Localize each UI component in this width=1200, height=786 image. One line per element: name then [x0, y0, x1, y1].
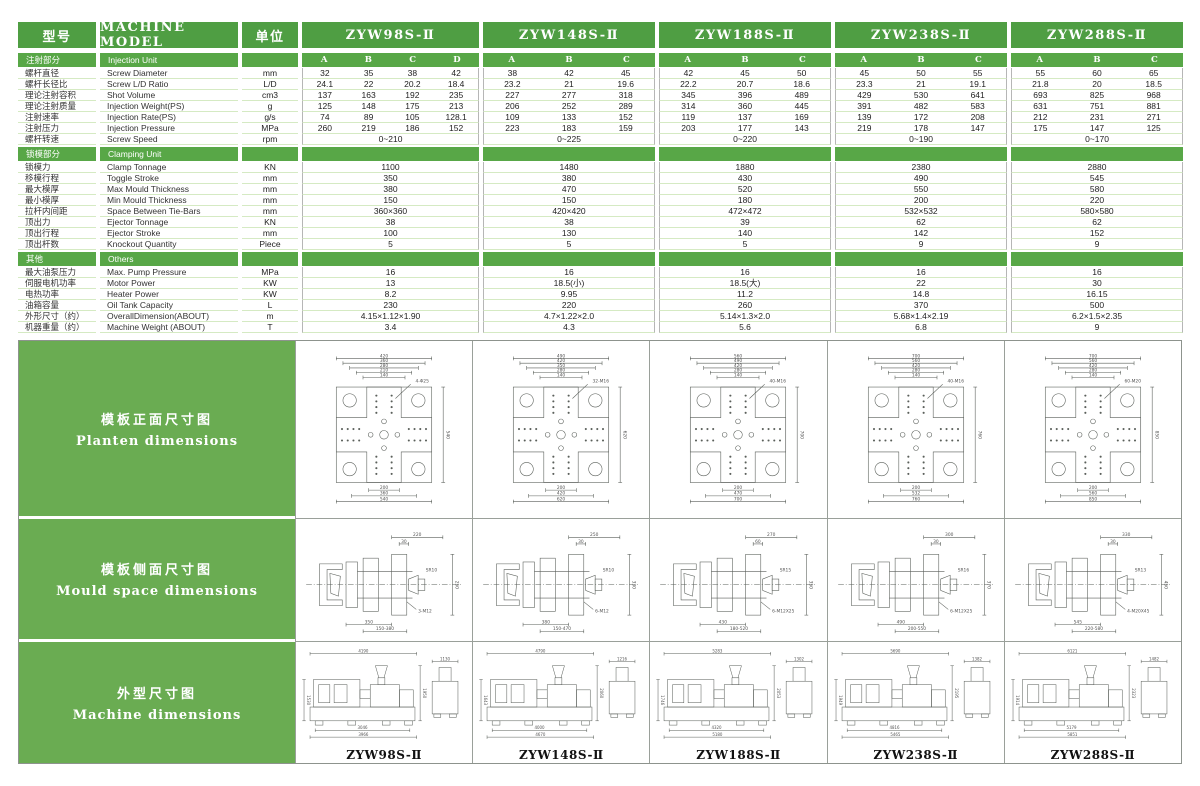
- value-cell: 32: [303, 68, 347, 78]
- drawing-cell-machine-dimensions: 419015301950304639661130ZYW98S-Ⅱ: [295, 642, 472, 763]
- drawing-cell-platen-dimensions: 49042035028014032-M16620200420620: [472, 341, 649, 519]
- bolt-spec-label: 40-M16: [947, 378, 964, 384]
- drawing-cell-platen-dimensions: 56049042028014040-M16700200470700: [649, 341, 826, 519]
- value-cell: 1880: [659, 162, 831, 173]
- dim-label: 1949: [838, 695, 843, 706]
- row-unit: L/D: [242, 79, 298, 90]
- row-label-cn: 螺杆转速: [18, 134, 96, 145]
- value-cell: 23.2: [484, 79, 541, 89]
- dim-label: 850: [1089, 496, 1098, 502]
- table-row: 锁模力Clamp TonnageKN11001480188023802880: [18, 162, 1183, 173]
- subcol-header-group: [483, 252, 655, 266]
- subcol-letter: B: [716, 55, 773, 65]
- value-cell: 223: [484, 123, 541, 133]
- row-label-en: Screw L/D Ratio: [100, 79, 238, 90]
- table-row: 注射速率Injection Rate(PS)g/s7489105128.1109…: [18, 112, 1183, 123]
- value-cell: 38: [483, 217, 655, 228]
- dim-label: 200: [1089, 484, 1098, 490]
- subcol-header-group: ABC: [1011, 53, 1183, 67]
- dim-label: 350: [808, 581, 814, 590]
- dim-label: 5179: [1066, 725, 1077, 730]
- dim-label: 700: [799, 430, 805, 439]
- value-cell: 55: [1012, 68, 1069, 78]
- dim-label: 30: [1110, 539, 1116, 545]
- value-cell: 3.4: [302, 322, 479, 333]
- dim-label: 560: [1089, 490, 1098, 496]
- value-cell: 380: [302, 184, 479, 195]
- row-unit: KN: [242, 217, 298, 228]
- platen-drawing: 4203602802101404-Φ25540200360540: [300, 352, 468, 508]
- platen-drawing: 56049042028014040-M16700200470700: [654, 352, 822, 508]
- row-label-en: Min Mould Thickness: [100, 195, 238, 206]
- row-label-en: Ejector Tonnage: [100, 217, 238, 228]
- value-cell: 62: [1011, 217, 1183, 228]
- value-cell-group: 391482583: [835, 101, 1007, 112]
- dim-label: 140: [912, 372, 921, 378]
- row-label-cn: 顶出力: [18, 217, 96, 228]
- dim-label: 470: [734, 490, 743, 496]
- subcol-header-group: [659, 147, 831, 161]
- dim-label: 370: [985, 581, 991, 590]
- nozzle-radius-label: SR10: [426, 567, 438, 573]
- dim-label: 532: [912, 490, 921, 496]
- value-cell: 147: [949, 123, 1006, 133]
- value-cell: 206: [484, 101, 541, 111]
- bolt-spec-label: 32-M16: [593, 378, 610, 384]
- table-row: 机器重量（约）Machine Weight (ABOUT)T3.44.35.66…: [18, 322, 1183, 333]
- value-cell: 370: [835, 300, 1007, 311]
- subcol-header-group: [302, 147, 479, 161]
- row-label-en: Machine Weight (ABOUT): [100, 322, 238, 333]
- value-cell-group: 23.22119.6: [483, 79, 655, 90]
- value-cell: 65: [1125, 68, 1182, 78]
- value-cell: 177: [717, 123, 774, 133]
- value-cell: 203: [660, 123, 717, 133]
- table-row: 电热功率Heater PowerKW8.29.9511.214.816.15: [18, 289, 1183, 300]
- subcol-header-group: [302, 252, 479, 266]
- unit-header: 单位: [242, 22, 298, 48]
- dim-label: 2323: [1131, 688, 1136, 699]
- value-cell: 175: [1012, 123, 1069, 133]
- value-cell: 55: [949, 68, 1006, 78]
- value-cell: 20: [1069, 79, 1126, 89]
- value-cell: 38: [391, 68, 435, 78]
- value-cell: 580×580: [1011, 206, 1183, 217]
- row-unit: mm: [242, 228, 298, 239]
- value-cell: 119: [660, 112, 717, 122]
- bolt-spec-label: 3-M12: [418, 608, 432, 614]
- row-label-cn: 注射速率: [18, 112, 96, 123]
- dim-label: 350: [365, 619, 374, 625]
- dim-label: 1130: [440, 656, 451, 661]
- dim-label: 1530: [306, 695, 311, 706]
- value-cell: 183: [541, 123, 598, 133]
- dim-label: 850: [1153, 430, 1159, 439]
- dim-label: 5180: [713, 732, 724, 737]
- value-cell-group: 455055: [835, 68, 1007, 79]
- value-cell: 60: [1069, 68, 1126, 78]
- table-row: 顶出杆数Knockout QuantityPiece55599: [18, 239, 1183, 250]
- value-cell: 380: [483, 173, 655, 184]
- dim-label: 2060: [599, 688, 604, 699]
- mould-space-drawing: 27060350430180-5206-M12X25SR15: [654, 524, 822, 636]
- dim-label: 330: [631, 581, 637, 590]
- value-cell: 18.5(大): [659, 278, 831, 289]
- dim-label: 200: [912, 484, 921, 490]
- value-cell: 5.6: [659, 322, 831, 333]
- value-cell-group: 206252289: [483, 101, 655, 112]
- bolt-spec-label: 4-Φ25: [416, 378, 430, 384]
- value-cell: 580: [1011, 184, 1183, 195]
- value-cell: 500: [1011, 300, 1183, 311]
- model-name: ZYW98S-Ⅱ: [302, 22, 479, 48]
- row-unit: mm: [242, 195, 298, 206]
- value-cell: 550: [835, 184, 1007, 195]
- drawing-cell-mould-space-dimensions: 30030370490200-5506-M12X25SR16: [827, 519, 1004, 642]
- value-cell: 489: [773, 90, 830, 100]
- value-cell: 45: [836, 68, 893, 78]
- machine-drawing: 479016432060400046701216: [475, 643, 647, 747]
- bolt-spec-label: 6-M12X25: [773, 608, 795, 614]
- row-label-cn: 拉杆内间距: [18, 206, 96, 217]
- row-label-cn: 顶出行程: [18, 228, 96, 239]
- value-cell: 6.8: [835, 322, 1007, 333]
- row-label-en: Shot Volume: [100, 90, 238, 101]
- row-label-cn: 最大油泵压力: [18, 267, 96, 278]
- dim-label: 540: [380, 496, 389, 502]
- drawing-cell-mould-space-dimensions: 27060350430180-5206-M12X25SR15: [649, 519, 826, 642]
- value-cell: 39: [659, 217, 831, 228]
- value-cell: 219: [347, 123, 391, 133]
- value-cell: 175: [391, 101, 435, 111]
- value-cell: 180: [659, 195, 831, 206]
- bolt-spec-label: 40-M16: [770, 378, 787, 384]
- row-unit: T: [242, 322, 298, 333]
- dim-label: 180-520: [730, 626, 748, 632]
- table-row: 螺杆长径比Screw L/D RatioL/D24.12220.218.423.…: [18, 79, 1183, 90]
- dim-label: 490: [896, 619, 905, 625]
- value-cell: 350: [302, 173, 479, 184]
- machine-drawing: 569019492195481654651382: [830, 643, 1002, 747]
- value-cell: 148: [347, 101, 391, 111]
- table-row: 最大模厚Max Mould Thicknessmm380470520550580: [18, 184, 1183, 195]
- row-unit: mm: [242, 184, 298, 195]
- row-unit: g/s: [242, 112, 298, 123]
- value-cell: 152: [1011, 228, 1183, 239]
- value-cell: 1100: [302, 162, 479, 173]
- dim-label: 760: [912, 496, 921, 502]
- subcol-letter: C: [391, 55, 435, 65]
- value-cell: 9.95: [483, 289, 655, 300]
- dim-label: 200: [557, 484, 566, 490]
- dim-label: 380: [542, 619, 551, 625]
- dim-label: 1643: [483, 695, 488, 706]
- value-cell: 133: [541, 112, 598, 122]
- machine-drawing: 419015301950304639661130: [298, 643, 470, 747]
- dim-label: 4670: [536, 732, 547, 737]
- value-cell: 9: [1011, 239, 1183, 250]
- value-cell-group: 227277318: [483, 90, 655, 101]
- value-cell: 42: [660, 68, 717, 78]
- value-cell: 21.8: [1012, 79, 1069, 89]
- dim-label: 140: [380, 372, 389, 378]
- subcol-header-group: [483, 147, 655, 161]
- value-cell-group: 22.220.718.6: [659, 79, 831, 90]
- section-label-cn: 锁模部分: [18, 147, 96, 161]
- value-cell: 30: [1011, 278, 1183, 289]
- drawing-model-label: ZYW188S-Ⅱ: [696, 747, 781, 762]
- sidebar-label-cn: 外型尺寸图: [117, 683, 197, 702]
- value-cell: 50: [893, 68, 950, 78]
- value-cell-group: 119137169: [659, 112, 831, 123]
- value-cell: 2380: [835, 162, 1007, 173]
- value-cell: 5: [302, 239, 479, 250]
- row-label-en: OverallDimension(ABOUT): [100, 311, 238, 322]
- subcol-letter: B: [540, 55, 597, 65]
- value-cell: 38: [484, 68, 541, 78]
- value-cell-group: 23.32119.1: [835, 79, 1007, 90]
- value-cell: 230: [302, 300, 479, 311]
- dim-label: 450: [1163, 581, 1169, 590]
- value-cell-group: 429530641: [835, 90, 1007, 101]
- value-cell: 11.2: [659, 289, 831, 300]
- dim-label: 1950: [422, 688, 427, 699]
- table-row: 注射压力Injection PressureMPa260219186152223…: [18, 123, 1183, 134]
- drawing-model-label: ZYW238S-Ⅱ: [873, 747, 958, 762]
- sidebar-section-platen-dimensions: 模板正面尺寸图Planten dimensions: [19, 341, 295, 519]
- value-cell: 18.5: [1125, 79, 1182, 89]
- value-cell: 18.5(小): [483, 278, 655, 289]
- dim-label: 330: [1122, 532, 1131, 538]
- subcol-letter: A: [483, 55, 540, 65]
- table-row: 螺杆直径Screw Diametermm32353842384245424550…: [18, 68, 1183, 79]
- mould-space-drawing: 33030450545220-5804-M20X45SR13: [1009, 524, 1177, 636]
- value-cell: 186: [391, 123, 435, 133]
- dim-label: 5465: [890, 732, 901, 737]
- value-cell: 18.6: [773, 79, 830, 89]
- value-cell: 137: [717, 112, 774, 122]
- table-row: 伺服电机功率Motor PowerKW1318.5(小)18.5(大)2230: [18, 278, 1183, 289]
- value-cell: 19.1: [949, 79, 1006, 89]
- dim-label: 30: [401, 539, 407, 545]
- drawing-cell-machine-dimensions: 569019492195481654651382ZYW238S-Ⅱ: [827, 642, 1004, 763]
- value-cell: 163: [347, 90, 391, 100]
- value-cell: 38: [302, 217, 479, 228]
- value-cell: 20.2: [391, 79, 435, 89]
- value-cell: 23.3: [836, 79, 893, 89]
- value-cell: 2880: [1011, 162, 1183, 173]
- value-cell: 314: [660, 101, 717, 111]
- value-cell: 445: [773, 101, 830, 111]
- value-cell-group: 314360445: [659, 101, 831, 112]
- value-cell: 147: [1069, 123, 1126, 133]
- value-cell: 430: [659, 173, 831, 184]
- row-label-en: Injection Rate(PS): [100, 112, 238, 123]
- row-label-en: Clamp Tonnage: [100, 162, 238, 173]
- value-cell: 45: [597, 68, 654, 78]
- value-cell: 4.15×1.12×1.90: [302, 311, 479, 322]
- value-cell: 641: [949, 90, 1006, 100]
- sidebar-label-en: Machine dimensions: [73, 708, 242, 723]
- bolt-spec-label: 6-M12: [595, 608, 609, 614]
- value-cell: 213: [434, 101, 478, 111]
- value-cell: 472×472: [659, 206, 831, 217]
- row-label-cn: 机器重量（约）: [18, 322, 96, 333]
- dim-label: 2195: [954, 688, 959, 699]
- row-unit: cm3: [242, 90, 298, 101]
- value-cell: 260: [659, 300, 831, 311]
- row-label-en: Max Mould Thickness: [100, 184, 238, 195]
- row-label-cn: 移模行程: [18, 173, 96, 184]
- value-cell: 105: [391, 112, 435, 122]
- drawing-cell-mould-space-dimensions: 33030450545220-5804-M20X45SR13: [1004, 519, 1181, 642]
- value-cell: 220: [1011, 195, 1183, 206]
- value-cell: 143: [773, 123, 830, 133]
- bolt-spec-label: 60-M20: [1124, 378, 1141, 384]
- value-cell: 5.14×1.3×2.0: [659, 311, 831, 322]
- value-cell: 881: [1125, 101, 1182, 111]
- section-unit-spacer: [242, 53, 298, 67]
- section-label-en: Others: [100, 252, 238, 266]
- row-label-en: Injection Pressure: [100, 123, 238, 134]
- value-cell: 520: [659, 184, 831, 195]
- platen-drawing: 70056042028014060-M20850200560850: [1009, 352, 1177, 508]
- dim-label: 30: [933, 539, 939, 545]
- platen-drawing: 70056042028014040-M16760200532760: [832, 352, 1000, 508]
- model-name: ZYW238S-Ⅱ: [835, 22, 1007, 48]
- mould-space-drawing: 25030330380150-4706-M12SR10: [477, 524, 645, 636]
- value-cell: 42: [541, 68, 598, 78]
- drawings-grid: 模板正面尺寸图Planten dimensions420360280210140…: [18, 340, 1182, 764]
- value-cell: 125: [1125, 123, 1182, 133]
- row-label-cn: 锁模力: [18, 162, 96, 173]
- dim-label: 140: [1089, 372, 1098, 378]
- value-cell: 470: [483, 184, 655, 195]
- value-cell: 396: [717, 90, 774, 100]
- value-cell: 16: [302, 267, 479, 278]
- value-cell-group: 21.82018.5: [1011, 79, 1183, 90]
- table-row: 最大油泵压力Max. Pump PressureMPa1616161616: [18, 267, 1183, 278]
- dim-label: 3046: [358, 725, 369, 730]
- section-band-row: 其他Others: [18, 252, 1183, 266]
- value-cell: 22: [835, 278, 1007, 289]
- table-row: 顶出力Ejector TonnageKN3838396262: [18, 217, 1183, 228]
- value-cell-group: 384245: [483, 68, 655, 79]
- value-cell: 532×532: [835, 206, 1007, 217]
- value-cell: 128.1: [434, 112, 478, 122]
- value-cell: 277: [541, 90, 598, 100]
- row-label-en: Max. Pump Pressure: [100, 267, 238, 278]
- section-band-row: 锁模部分Clamping Unit: [18, 147, 1183, 161]
- subcol-letter: A: [1011, 55, 1068, 65]
- row-label-cn: 理论注射容积: [18, 90, 96, 101]
- dim-label: 620: [557, 496, 566, 502]
- table-row: 拉杆内间距Space Between Tie-Barsmm360×360420×…: [18, 206, 1183, 217]
- dim-label: 5851: [1067, 732, 1078, 737]
- value-cell: 178: [893, 123, 950, 133]
- row-label-en: Toggle Stroke: [100, 173, 238, 184]
- row-label-cn: 螺杆长径比: [18, 79, 96, 90]
- value-cell: 482: [893, 101, 950, 111]
- dim-label: 700: [734, 496, 743, 502]
- value-cell: 125: [303, 101, 347, 111]
- subcol-header-group: ABCD: [302, 53, 479, 67]
- value-cell: 5: [483, 239, 655, 250]
- value-cell: 109: [484, 112, 541, 122]
- value-cell: 100: [302, 228, 479, 239]
- drawing-cell-machine-dimensions: 612119142323517958511482ZYW288S-Ⅱ: [1004, 642, 1181, 763]
- value-cell-group: 345396489: [659, 90, 831, 101]
- row-label-cn: 最大模厚: [18, 184, 96, 195]
- value-cell: 16: [659, 267, 831, 278]
- subcol-header-group: ABC: [483, 53, 655, 67]
- dim-label: 760: [976, 430, 982, 439]
- row-unit: KW: [242, 289, 298, 300]
- row-label-en: Heater Power: [100, 289, 238, 300]
- nozzle-radius-label: SR15: [780, 567, 792, 573]
- value-cell: 16: [835, 267, 1007, 278]
- dim-label: 140: [734, 372, 743, 378]
- subcol-letter: C: [774, 55, 831, 65]
- row-label-cn: 顶出杆数: [18, 239, 96, 250]
- dim-label: 5283: [713, 649, 724, 654]
- value-cell-group: 631751881: [1011, 101, 1183, 112]
- section-label-cn: 其他: [18, 252, 96, 266]
- value-cell: 139: [836, 112, 893, 122]
- value-cell: 150: [483, 195, 655, 206]
- table-header-row: 型号MACHINE MODEL单位ZYW98S-ⅡZYW148S-ⅡZYW188…: [18, 22, 1183, 48]
- value-cell: 289: [597, 101, 654, 111]
- dim-label: 140: [557, 372, 566, 378]
- value-cell-group: 24.12220.218.4: [302, 79, 479, 90]
- dim-label: 5690: [890, 649, 901, 654]
- value-cell: 0~220: [659, 134, 831, 145]
- value-cell: 490: [835, 173, 1007, 184]
- subcol-letter: D: [435, 55, 479, 65]
- table-row: 理论注射容积Shot Volumecm313716319223522727731…: [18, 90, 1183, 101]
- value-cell: 18.4: [434, 79, 478, 89]
- row-label-en: Knockout Quantity: [100, 239, 238, 250]
- value-cell-group: 125148175213: [302, 101, 479, 112]
- subcol-letter: C: [950, 55, 1007, 65]
- dim-label: 270: [768, 532, 777, 538]
- value-cell: 45: [717, 68, 774, 78]
- value-cell: 152: [597, 112, 654, 122]
- row-unit: mm: [242, 206, 298, 217]
- value-cell: 360: [717, 101, 774, 111]
- model-header-en: MACHINE MODEL: [100, 22, 238, 48]
- value-cell: 9: [1011, 322, 1183, 333]
- value-cell: 235: [434, 90, 478, 100]
- subcol-header-group: [1011, 252, 1183, 266]
- value-cell: 0~190: [835, 134, 1007, 145]
- value-cell: 0~170: [1011, 134, 1183, 145]
- value-cell: 4.7×1.22×2.0: [483, 311, 655, 322]
- dim-label: 30: [578, 539, 584, 545]
- value-cell: 231: [1069, 112, 1126, 122]
- value-cell: 968: [1125, 90, 1182, 100]
- row-unit: MPa: [242, 267, 298, 278]
- subcol-letter: B: [346, 55, 390, 65]
- dim-label: 250: [454, 581, 460, 590]
- row-unit: KN: [242, 162, 298, 173]
- value-cell-group: 175147125: [1011, 123, 1183, 134]
- subcol-letter: B: [1068, 55, 1125, 65]
- dim-label: 250: [590, 532, 599, 538]
- row-unit: mm: [242, 68, 298, 79]
- section-label-cn: 注射部分: [18, 53, 96, 67]
- sidebar-label-cn: 模板侧面尺寸图: [101, 559, 213, 578]
